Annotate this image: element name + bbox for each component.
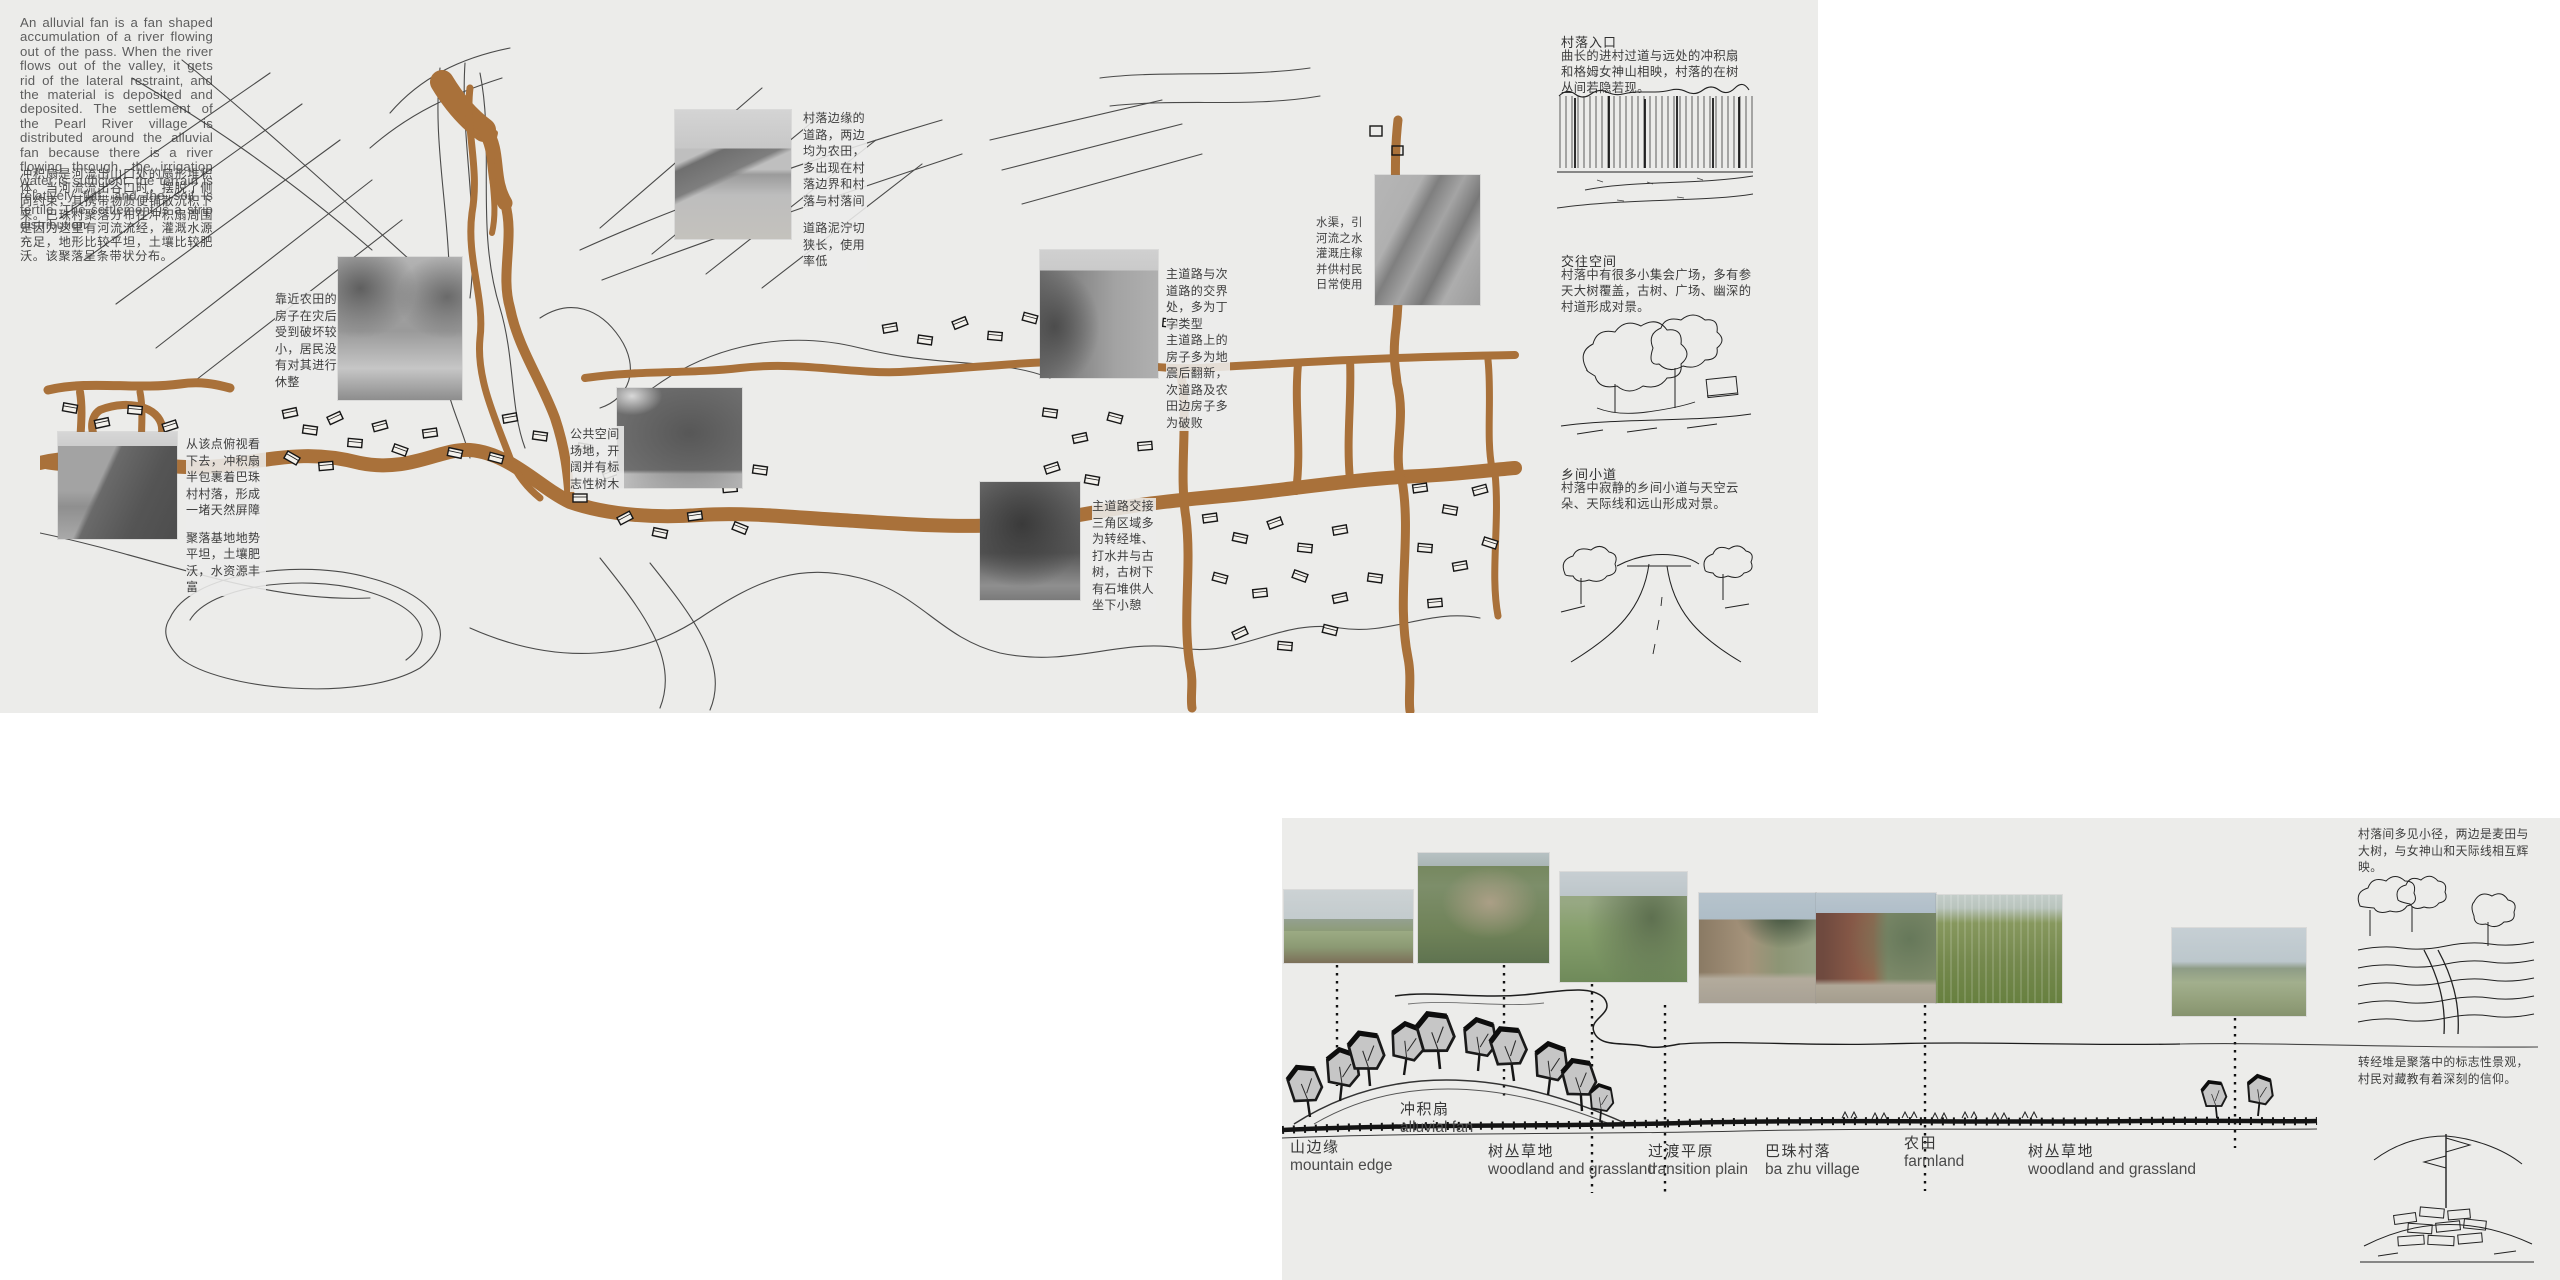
annotation-canal: 水渠，引河流之水灌溉庄稼并供村民日常使用 [1316,216,1374,294]
annotation-edge-road-p1: 村落边缘的道路，两边均为农田，多出现在村落边界和村落与村落间 [803,110,867,209]
annotation-edge-road-p2: 道路泥泞切狭长，使用率低 [803,220,867,270]
annotation-junction-p2: 主道路上的房子多为地震后翻新，次道路及农田边房子多为破败 [1166,332,1230,431]
label-transition-plain-cn: 过渡平原 [1648,1140,1748,1161]
label-mountain-edge-en: mountain edge [1290,1157,1393,1175]
annotation-viewpoint: 从该点俯视看下去，冲积扇半包裹着巴珠村村落，形成一堵天然屏障 聚落基地地势平坦，… [186,436,266,596]
alluvial-fan-analysis-panel: An alluvial fan is a fan shaped accumula… [0,0,1818,713]
annotation-public-space: 公共空间场地，开阔并有标志性树木 [570,426,624,492]
label-ba-zhu-village: 巴珠村落 ba zhu village [1765,1140,1860,1179]
sketch-village-entrance [1557,82,1753,232]
sketch-lane-between-fields [2354,866,2540,1041]
photo-old-tree-node [980,482,1080,600]
photo-overlook-valley [58,432,177,539]
photo-section-cornfield [1936,895,2062,1003]
photo-section-far-valley [2172,928,2306,1016]
sketch-social-space [1557,300,1755,450]
label-farmland-cn: 农田 [1904,1132,1964,1153]
label-woodland-grassland-1-cn: 树丛草地 [1488,1140,1656,1161]
annotation-near-farmland-text: 靠近农田的房子在灾后受到破坏较小，居民没有对其进行休整 [275,291,337,390]
label-mountain-edge: 山边缘 mountain edge [1290,1136,1393,1175]
presentation-board: An alluvial fan is a fan shaped accumula… [0,0,2560,1280]
label-farmland-en: farmland [1904,1153,1964,1171]
annotation-triangle-node: 主道路交接三角区域多为转经堆、打水井与古树，古树下有石堆供人坐下小憩 [1092,498,1156,614]
vignette-body-country-lane: 村落中寂静的乡间小道与天空云朵、天际线和远山形成对景。 [1561,480,1753,512]
label-ba-zhu-village-en: ba zhu village [1765,1161,1860,1179]
annotation-public-space-text: 公共空间场地，开阔并有标志性树木 [570,426,624,492]
annotation-viewpoint-p2: 聚落基地地势平坦，土壤肥沃，水资源丰富 [186,530,266,596]
label-woodland-grassland-2-en: woodland and grassland [2028,1161,2196,1179]
photo-public-space-trees [617,388,742,488]
photo-road-junction-gate [1040,250,1158,378]
label-woodland-grassland-2-cn: 树丛草地 [2028,1140,2196,1161]
photo-edge-field-road [675,110,791,239]
label-woodland-grassland-1-en: woodland and grassland [1488,1161,1656,1179]
label-woodland-grassland-2: 树丛草地 woodland and grassland [2028,1140,2196,1179]
label-ba-zhu-village-cn: 巴珠村落 [1765,1140,1860,1161]
annotation-triangle-node-text: 主道路交接三角区域多为转经堆、打水井与古树，古树下有石堆供人坐下小憩 [1092,498,1156,614]
label-alluvial-fan: 冲积扇 alluvial fan [1400,1098,1473,1137]
photo-village-street-people [338,257,462,400]
label-transition-plain-en: transition plain [1648,1161,1748,1179]
annotation-canal-text: 水渠，引河流之水灌溉庄稼并供村民日常使用 [1316,216,1374,294]
photo-irrigation-canal [1375,175,1480,305]
annotation-near-farmland: 靠近农田的房子在灾后受到破坏较小，居民没有对其进行休整 [275,291,337,390]
label-alluvial-fan-cn: 冲积扇 [1400,1098,1473,1119]
photo-section-valley-fields [1284,890,1413,963]
village-plan-sketch-map [40,18,1550,713]
sketch-country-lane [1557,512,1753,670]
photo-section-village-lane [1699,893,1816,1003]
annotation-viewpoint-p1: 从该点俯视看下去，冲积扇半包裹着巴珠村村落，形成一堵天然屏障 [186,436,266,519]
label-transition-plain: 过渡平原 transition plain [1648,1140,1748,1179]
label-farmland: 农田 farmland [1904,1132,1964,1171]
annotation-junction-p1: 主道路与次道路的交界处，多为丁字类型 [1166,266,1230,332]
landscape-section-panel: 山边缘 mountain edge 冲积扇 alluvial fan 树丛草地 … [1282,818,2560,1280]
label-alluvial-fan-en: alluvial fan [1400,1119,1473,1137]
annotation-junction: 主道路与次道路的交界处，多为丁字类型 主道路上的房子多为地震后翻新，次道路及农田… [1166,266,1230,431]
photo-section-green-valley [1560,872,1687,982]
photo-section-red-house-street [1816,893,1936,1003]
sketch-mani-pile [2354,1096,2540,1274]
annotation-edge-road: 村落边缘的道路，两边均为农田，多出现在村落边界和村落与村落间 道路泥泞切狭长，使… [803,110,867,270]
photo-section-hillside-village [1418,853,1549,963]
label-woodland-grassland-1: 树丛草地 woodland and grassland [1488,1140,1656,1179]
label-mountain-edge-cn: 山边缘 [1290,1136,1393,1157]
